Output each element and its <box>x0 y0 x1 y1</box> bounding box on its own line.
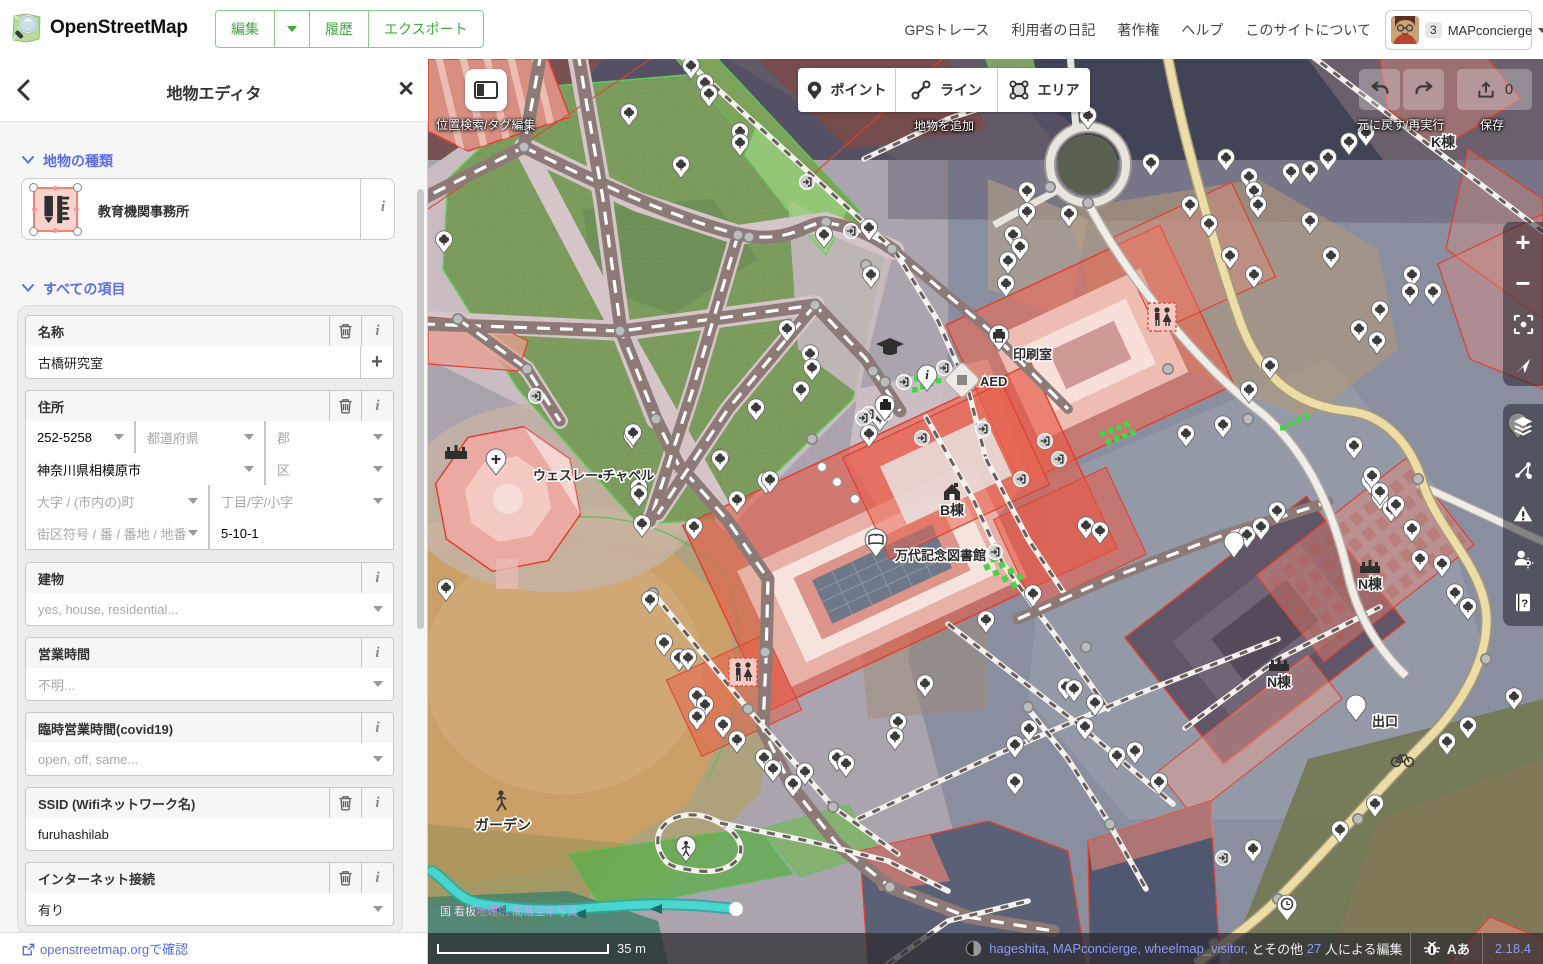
svg-text:i: i <box>925 367 929 382</box>
svg-text:K棟: K棟 <box>1431 134 1456 150</box>
svg-text:ガーデン: ガーデン <box>475 817 531 833</box>
svg-text:B棟: B棟 <box>940 502 965 518</box>
svg-text:AED: AED <box>980 374 1007 389</box>
svg-text:ウェスレー・チャペル: ウェスレー・チャペル <box>533 468 654 483</box>
svg-text:国 看板地理院 簡易空中写真: 国 看板地理院 簡易空中写真 <box>440 904 578 918</box>
svg-text:N棟: N棟 <box>1358 576 1383 592</box>
svg-text:?: ? <box>1521 597 1528 609</box>
svg-text:N棟: N棟 <box>1267 674 1292 690</box>
svg-text:万代記念図書館: 万代記念図書館 <box>894 548 986 563</box>
svg-text:出口: 出口 <box>1372 714 1398 729</box>
svg-text:印刷室: 印刷室 <box>1013 347 1052 362</box>
